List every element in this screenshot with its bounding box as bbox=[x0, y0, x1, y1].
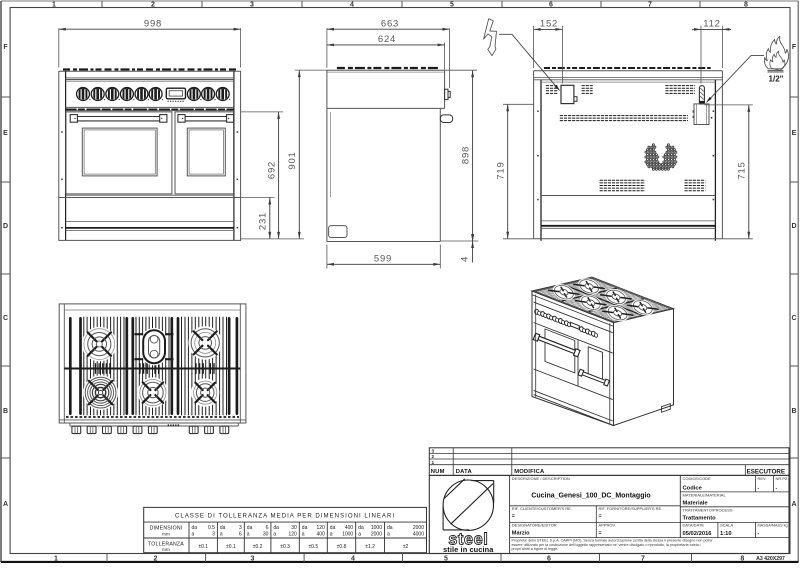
svg-text:E: E bbox=[3, 130, 8, 137]
svg-text:5: 5 bbox=[450, 1, 454, 8]
svg-text:998: 998 bbox=[144, 18, 162, 29]
svg-text:599: 599 bbox=[374, 253, 392, 264]
svg-text:DESIGNATORE/EDITOR: DESIGNATORE/EDITOR bbox=[512, 522, 557, 527]
svg-text:898: 898 bbox=[461, 146, 472, 164]
svg-text:152: 152 bbox=[540, 18, 558, 29]
svg-text:7: 7 bbox=[641, 555, 645, 562]
svg-text:DATA: DATA bbox=[456, 469, 473, 475]
svg-text:da: da bbox=[220, 525, 226, 531]
svg-text:da: da bbox=[330, 525, 336, 531]
svg-text:±0.8: ±0.8 bbox=[337, 544, 347, 550]
svg-text:propri diritti a rigore di leg: propri diritti a rigore di legge. bbox=[512, 547, 559, 551]
svg-text:da: da bbox=[302, 525, 308, 531]
svg-text:719: 719 bbox=[496, 161, 507, 179]
svg-text:4000: 4000 bbox=[413, 531, 424, 537]
svg-text:=: = bbox=[599, 531, 602, 537]
svg-text:a: a bbox=[302, 531, 305, 537]
svg-text:F: F bbox=[3, 44, 8, 51]
svg-text:3: 3 bbox=[239, 525, 242, 531]
svg-text:MODIFICA: MODIFICA bbox=[514, 469, 545, 475]
svg-text:±0.5: ±0.5 bbox=[308, 544, 318, 550]
svg-text:a: a bbox=[192, 531, 195, 537]
svg-text:Trattamento: Trattamento bbox=[683, 516, 717, 522]
svg-text:F: F bbox=[792, 44, 797, 51]
svg-text:=: = bbox=[512, 514, 515, 520]
svg-text:±0.1: ±0.1 bbox=[198, 544, 208, 550]
svg-text:mm: mm bbox=[162, 547, 170, 552]
svg-text:=: = bbox=[599, 514, 602, 520]
svg-text:1000: 1000 bbox=[371, 525, 382, 531]
svg-text:±2: ±2 bbox=[403, 544, 409, 550]
svg-text:400: 400 bbox=[316, 531, 325, 537]
svg-text:APPROV.: APPROV. bbox=[599, 522, 616, 527]
svg-text:6: 6 bbox=[239, 531, 242, 537]
svg-text:400: 400 bbox=[345, 525, 354, 531]
svg-text:3: 3 bbox=[250, 1, 254, 8]
svg-text:B: B bbox=[3, 408, 8, 415]
svg-text:A: A bbox=[791, 501, 796, 508]
svg-text:RIF. CLIENTE/CUSTOMER'S RE.: RIF. CLIENTE/CUSTOMER'S RE. bbox=[512, 506, 572, 511]
svg-text:C: C bbox=[791, 315, 796, 322]
svg-text:CLASSE DI TOLLERANZA MEDIA PER: CLASSE DI TOLLERANZA MEDIA PER DIMENSION… bbox=[175, 512, 395, 519]
svg-text:4: 4 bbox=[459, 257, 470, 262]
svg-text:stile in cucina: stile in cucina bbox=[443, 545, 494, 554]
svg-text:692: 692 bbox=[267, 161, 278, 179]
svg-text:da: da bbox=[358, 525, 364, 531]
svg-text:1/2": 1/2" bbox=[769, 75, 784, 84]
svg-text:7: 7 bbox=[648, 1, 652, 8]
svg-text:663: 663 bbox=[381, 18, 399, 29]
svg-text:3: 3 bbox=[251, 555, 255, 562]
svg-text:1000: 1000 bbox=[342, 531, 353, 537]
svg-text:05/02/2016: 05/02/2016 bbox=[683, 531, 713, 537]
svg-text:B: B bbox=[791, 408, 796, 415]
svg-text:0.5: 0.5 bbox=[208, 525, 215, 531]
svg-text:2000: 2000 bbox=[413, 525, 424, 531]
svg-text:E: E bbox=[792, 130, 797, 137]
svg-text:NUM: NUM bbox=[431, 469, 445, 475]
svg-text:RIF. FORNITORE/SUPPLIER'S RE.: RIF. FORNITORE/SUPPLIER'S RE. bbox=[599, 506, 663, 511]
svg-text:Marzio: Marzio bbox=[512, 531, 530, 537]
svg-text:±0.1: ±0.1 bbox=[226, 544, 236, 550]
svg-text:6: 6 bbox=[549, 1, 553, 8]
svg-text:4: 4 bbox=[350, 1, 354, 8]
svg-text:C: C bbox=[3, 315, 8, 322]
svg-text:2: 2 bbox=[154, 555, 158, 562]
svg-text:DESCRIZIONE / DESCRIPTION: DESCRIZIONE / DESCRIPTION bbox=[512, 476, 570, 481]
svg-text:120: 120 bbox=[288, 531, 297, 537]
svg-text:2: 2 bbox=[432, 454, 435, 460]
svg-text:A3 420X297: A3 420X297 bbox=[756, 556, 785, 562]
svg-text:D: D bbox=[3, 223, 8, 230]
svg-text:6: 6 bbox=[266, 525, 269, 531]
svg-text:1: 1 bbox=[54, 555, 58, 562]
svg-text:TRATTAMENTO/PROCESS: TRATTAMENTO/PROCESS bbox=[683, 507, 733, 512]
svg-text:a: a bbox=[273, 531, 276, 537]
svg-text:a: a bbox=[358, 531, 361, 537]
svg-text:DATA/DATE: DATA/DATE bbox=[683, 522, 705, 527]
svg-text:MASSA/MASS kg: MASSA/MASS kg bbox=[758, 523, 788, 527]
svg-text:SCALA: SCALA bbox=[720, 522, 733, 527]
svg-text:da: da bbox=[247, 525, 253, 531]
svg-text:a: a bbox=[387, 531, 390, 537]
svg-text:Cucina_Genesi_100_DC_Montaggio: Cucina_Genesi_100_DC_Montaggio bbox=[531, 492, 650, 499]
svg-text:Materiale: Materiale bbox=[683, 500, 709, 506]
svg-text:6: 6 bbox=[547, 555, 551, 562]
svg-text:8: 8 bbox=[744, 1, 748, 8]
svg-text:±0.3: ±0.3 bbox=[280, 544, 290, 550]
svg-text:da: da bbox=[192, 525, 198, 531]
svg-text:da: da bbox=[387, 525, 393, 531]
svg-text:624: 624 bbox=[378, 34, 396, 45]
svg-text:D: D bbox=[791, 223, 796, 230]
svg-text:±0.2: ±0.2 bbox=[253, 544, 263, 550]
svg-text:MATERIALE/MATERIAL: MATERIALE/MATERIAL bbox=[683, 492, 727, 497]
svg-text:NR.PZ.: NR.PZ. bbox=[776, 476, 789, 481]
svg-text:2: 2 bbox=[151, 1, 155, 8]
svg-text:112: 112 bbox=[703, 18, 721, 29]
svg-text:CODICE/CODE: CODICE/CODE bbox=[683, 476, 712, 481]
svg-text:±1.2: ±1.2 bbox=[365, 544, 375, 550]
svg-text:8: 8 bbox=[740, 555, 744, 562]
svg-text:a: a bbox=[330, 531, 333, 537]
svg-text:da: da bbox=[273, 525, 279, 531]
svg-text:REV.: REV. bbox=[758, 476, 767, 481]
svg-text:715: 715 bbox=[737, 161, 748, 179]
svg-text:1:10: 1:10 bbox=[720, 531, 732, 537]
svg-text:30: 30 bbox=[263, 531, 269, 537]
svg-text:1: 1 bbox=[432, 460, 435, 466]
svg-text:ESECUTORE: ESECUTORE bbox=[747, 468, 785, 475]
svg-text:3: 3 bbox=[212, 531, 215, 537]
svg-text:4: 4 bbox=[351, 555, 355, 562]
svg-text:-: - bbox=[776, 485, 778, 491]
svg-text:2000: 2000 bbox=[371, 531, 382, 537]
svg-text:A: A bbox=[3, 501, 8, 508]
svg-text:231: 231 bbox=[258, 212, 269, 230]
svg-text:5: 5 bbox=[444, 555, 448, 562]
svg-text:-: - bbox=[758, 485, 760, 491]
svg-text:-: - bbox=[758, 531, 760, 537]
svg-text:120: 120 bbox=[316, 525, 325, 531]
svg-text:Codice: Codice bbox=[683, 485, 703, 491]
svg-text:30: 30 bbox=[291, 525, 297, 531]
svg-text:901: 901 bbox=[287, 151, 298, 169]
svg-text:mm: mm bbox=[162, 532, 170, 537]
svg-text:a: a bbox=[220, 531, 223, 537]
svg-text:1: 1 bbox=[52, 1, 56, 8]
svg-text:3: 3 bbox=[432, 449, 435, 455]
svg-text:a: a bbox=[247, 531, 250, 537]
